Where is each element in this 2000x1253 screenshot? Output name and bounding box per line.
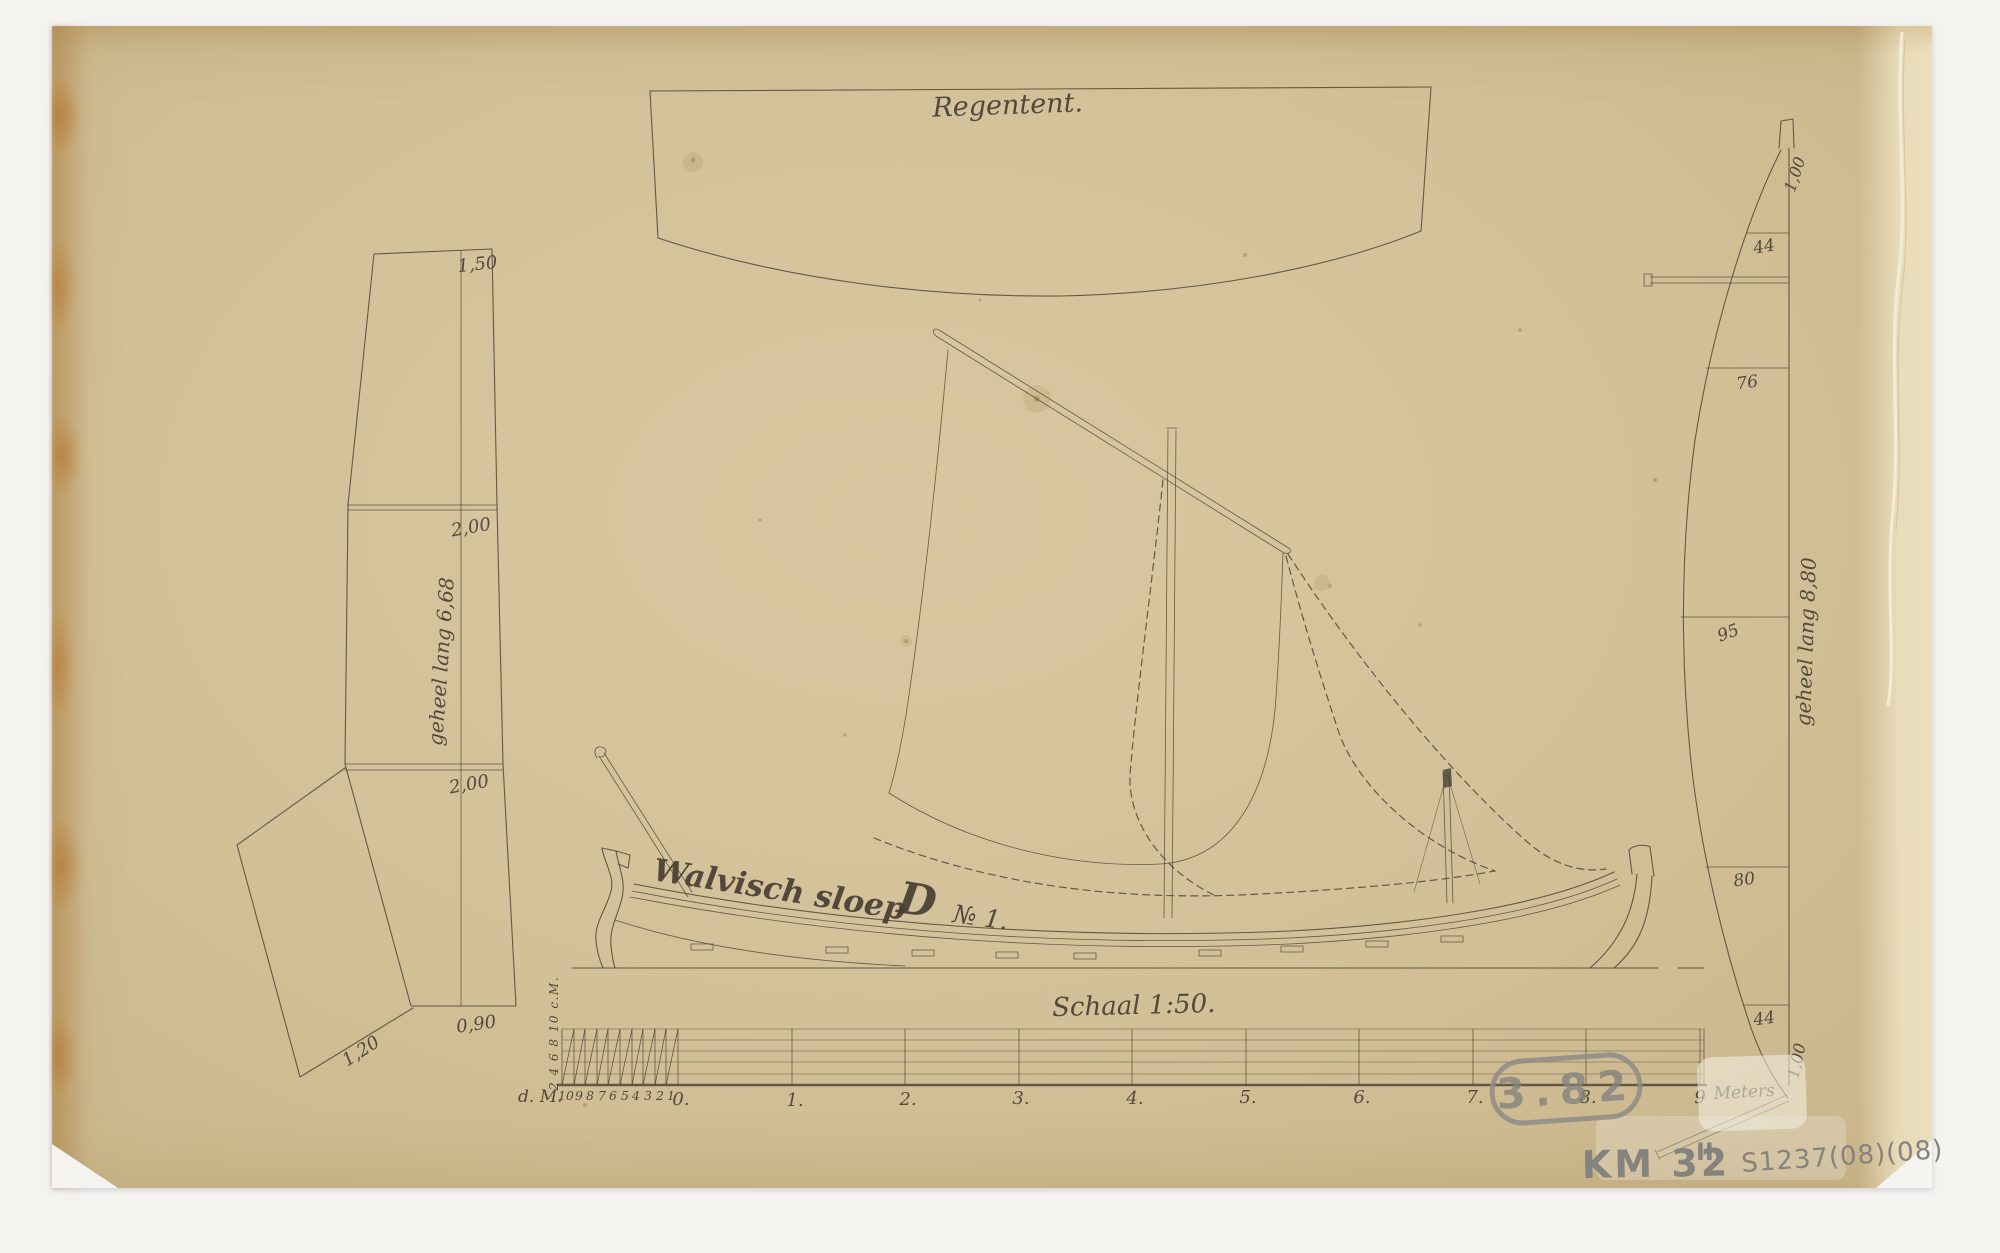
sail-seam-label-3: 95 (1715, 620, 1742, 646)
inventory-suffix: II (1696, 1138, 1714, 1166)
scale-title: Schaal 1:50. (1052, 989, 1216, 1023)
m-tick: 4. (1125, 1088, 1143, 1109)
m-tick: 1. (786, 1090, 803, 1111)
transom-title: Regentent. (931, 87, 1084, 123)
dm-tick: 6 (609, 1088, 617, 1103)
m-tick: 0. (672, 1089, 689, 1110)
m-tick: 2. (898, 1089, 916, 1110)
mizzen-mast (1443, 772, 1453, 903)
sail-leech (1275, 553, 1283, 710)
dm-tick: 5 (621, 1088, 629, 1103)
archival-annotations: 3.82 KM 32 II S1237(08)(08) (1490, 1053, 1944, 1187)
sail-foot (889, 710, 1275, 864)
sail-seam-label-1: 44 (1751, 235, 1777, 259)
transom-left-edge (650, 91, 658, 238)
yard-spar (933, 329, 1290, 553)
scale-decimeter-labels: 10 9 8 7 6 5 4 3 2 1 (558, 1088, 675, 1103)
cross-spar (1644, 274, 1789, 286)
m-tick: 3. (1012, 1088, 1029, 1109)
scanned-sheet-background: Regentent. 1,50 2,00 geheel lang 6,68 2,… (0, 0, 2000, 1253)
dm-tick: 3 (644, 1088, 652, 1103)
collection-stamp: 3.82 (1490, 1053, 1642, 1125)
sloop-number-label: № 1. (950, 899, 1010, 936)
dm-tick: 8 (586, 1088, 594, 1103)
scale-vertical-axis-label: 2 4 6 8 10 c.M. (547, 976, 561, 1091)
plank-side-panel (237, 768, 413, 1077)
m-tick: 6. (1353, 1087, 1370, 1108)
stem-head (602, 848, 630, 868)
mast (1164, 428, 1177, 918)
sail-seam-label-4: 80 (1732, 869, 1756, 892)
lowered-sail-line-dashed (874, 838, 1495, 896)
plank-lower-width-label: 2,00 (447, 771, 491, 799)
mizzen-stays (1414, 774, 1480, 892)
stem-inner-curve (611, 851, 623, 968)
plank-lower-seam (345, 764, 503, 770)
stern-head-block (1629, 845, 1654, 876)
torn-corner-bottom-left (52, 1144, 118, 1188)
dm-tick: 4 (631, 1088, 640, 1103)
m-tick: 5. (1239, 1087, 1256, 1108)
walvisch-sloep-drawing: Regentent. 1,50 2,00 geheel lang 6,68 2,… (0, 0, 2000, 1253)
sloop-profile: Walvisch sloep D № 1. (572, 329, 1704, 968)
foxing-specks (583, 158, 1657, 1108)
plank-length-label: geheel lang 6,68 (423, 576, 459, 746)
dm-tick: 7 (598, 1088, 606, 1103)
plank-upper-seam (348, 505, 497, 510)
plank-bottom-width-label: 0,90 (455, 1011, 498, 1037)
paper-defects (52, 32, 1932, 1188)
transom-bottom-curve (658, 231, 1421, 296)
sloop-name-label: Walvisch sloep (651, 852, 909, 927)
dm-tick: 2 (655, 1088, 664, 1103)
scale-decimeter-divisions (574, 1029, 666, 1085)
stamp-number: 3.82 (1495, 1060, 1638, 1119)
sail-seam-label-5: 44 (1751, 1008, 1776, 1031)
sail-head-width-label: 1,00 (1780, 154, 1809, 194)
plank-side-width-label: 1,20 (338, 1032, 383, 1071)
bowsprit-tip-scroll (595, 747, 606, 758)
transom-panel: Regentent. (650, 87, 1431, 296)
sail-seam-label-2: 76 (1735, 372, 1759, 395)
m-tick: 7. (1466, 1087, 1483, 1108)
sail-luff (889, 350, 948, 793)
paper-crease (1888, 32, 1902, 706)
stain-spots (683, 152, 1330, 647)
plank-upper-width-label: 2,00 (449, 514, 493, 542)
sail-expansion-plan: 1,00 44 76 95 80 44 1,00 geheel lang 8,8… (1644, 119, 1821, 1160)
sloop-monogram: D (892, 872, 940, 929)
transom-right-edge (1421, 87, 1431, 231)
plank-top-width-label: 1,50 (456, 252, 498, 277)
stem-outer-curve (596, 848, 612, 968)
stern-outer-curve (1614, 876, 1652, 968)
masthead-block (1779, 119, 1794, 148)
stern-stay-dashed (1288, 554, 1606, 870)
dm-tick: 9 (575, 1088, 583, 1103)
sail-length-label: geheel lang 8,80 (1791, 557, 1821, 727)
keel-plank-expansion: 1,50 2,00 geheel lang 6,68 2,00 0,90 1,2… (237, 249, 516, 1077)
bow-lower-curve (615, 920, 905, 966)
sheet-line-dashed (1286, 556, 1495, 871)
